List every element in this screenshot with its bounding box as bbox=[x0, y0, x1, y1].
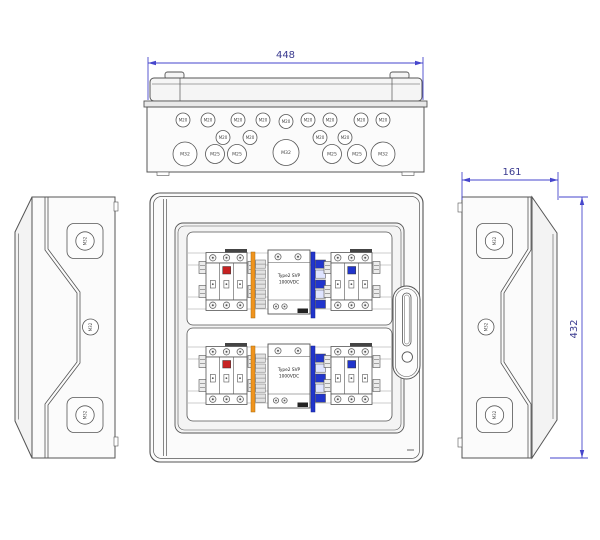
front-view: Type2 SVP 1000VDC Type2 SVP 1000VDC bbox=[150, 193, 423, 462]
cable-gland: M20 bbox=[301, 113, 315, 127]
cable-gland: M25 bbox=[206, 145, 225, 164]
side-knockout: M32 bbox=[83, 319, 99, 335]
right-side-view: M32 M32 M32 161 432 bbox=[458, 167, 588, 458]
svg-text:M32: M32 bbox=[83, 236, 88, 245]
svg-text:M32: M32 bbox=[378, 152, 388, 158]
drawing-canvas: 448 M20 M20 M20 M20 M20 M20 M20 M20 M2 bbox=[0, 0, 600, 540]
svg-text:M32: M32 bbox=[281, 150, 291, 156]
svg-text:M20: M20 bbox=[219, 135, 228, 140]
svg-text:M20: M20 bbox=[204, 118, 213, 123]
svg-text:M32: M32 bbox=[492, 236, 497, 245]
cable-gland: M20 bbox=[323, 113, 337, 127]
technical-drawing: 448 M20 M20 M20 M20 M20 M20 M20 M20 M2 bbox=[0, 0, 600, 540]
top-view: 448 M20 M20 M20 M20 M20 M20 M20 M20 M2 bbox=[144, 50, 427, 176]
door-handle bbox=[393, 286, 420, 379]
hinge-tab bbox=[458, 438, 462, 447]
top-view-rim bbox=[144, 101, 427, 107]
cable-gland: M20 bbox=[176, 113, 190, 127]
side-knockout: M32 bbox=[67, 224, 103, 259]
svg-text:M20: M20 bbox=[246, 135, 255, 140]
spd-label-line1: Type2 SVP bbox=[277, 367, 301, 373]
side-knockout: M32 bbox=[67, 398, 103, 433]
side-knockout: M32 bbox=[478, 319, 494, 335]
cable-gland: M20 bbox=[338, 131, 352, 145]
cable-gland: M20 bbox=[216, 131, 230, 145]
lock-circle bbox=[402, 352, 412, 362]
left-lid-profile bbox=[15, 197, 32, 458]
hinge-tab bbox=[114, 437, 118, 446]
side-knockout: M32 bbox=[477, 398, 513, 433]
svg-text:M32: M32 bbox=[484, 322, 489, 331]
svg-text:M20: M20 bbox=[234, 118, 243, 123]
terminal-strip-orange bbox=[251, 346, 266, 412]
cable-gland: M20 bbox=[256, 113, 270, 127]
cable-gland-row1: M20 M20 M20 M20 M20 M20 M20 M20 M20 bbox=[176, 113, 390, 129]
hinge-tab bbox=[114, 202, 118, 211]
cable-gland: M32 bbox=[173, 142, 197, 166]
svg-text:M20: M20 bbox=[379, 118, 388, 123]
terminal-strip-blue bbox=[311, 252, 326, 318]
svg-text:M20: M20 bbox=[304, 118, 313, 123]
dimension-depth-label: 161 bbox=[502, 167, 521, 178]
svg-text:M20: M20 bbox=[341, 135, 350, 140]
hinge-tab bbox=[458, 203, 462, 212]
svg-text:M25: M25 bbox=[352, 152, 362, 158]
svg-text:M25: M25 bbox=[210, 152, 220, 158]
fuse-group-right bbox=[324, 343, 380, 405]
cable-gland: M20 bbox=[376, 113, 390, 127]
spd-label-line1: Type2 SVP bbox=[277, 273, 301, 279]
svg-text:M20: M20 bbox=[259, 118, 268, 123]
left-side-view: M32 M32 M32 bbox=[15, 197, 118, 458]
fuse-group-right bbox=[324, 249, 380, 311]
component-row-2: Type2 SVP 1000VDC bbox=[199, 343, 380, 412]
svg-text:M20: M20 bbox=[316, 135, 325, 140]
fuse-group-left bbox=[199, 343, 255, 405]
svg-text:M25: M25 bbox=[327, 152, 337, 158]
svg-text:M32: M32 bbox=[492, 410, 497, 419]
dimension-height-label: 432 bbox=[569, 319, 580, 338]
cable-gland: M20 bbox=[201, 113, 215, 127]
cable-gland: M20 bbox=[231, 113, 245, 127]
dimension-depth: 161 bbox=[462, 167, 558, 200]
cable-gland: M20 bbox=[354, 113, 368, 127]
svg-text:M32: M32 bbox=[180, 152, 190, 158]
component-row-1: Type2 SVP 1000VDC bbox=[199, 249, 380, 318]
cable-gland: M25 bbox=[228, 145, 247, 164]
svg-text:M32: M32 bbox=[88, 322, 93, 331]
svg-text:M32: M32 bbox=[83, 410, 88, 419]
cable-gland: M25 bbox=[323, 145, 342, 164]
fuse-group-left bbox=[199, 249, 255, 311]
dimension-width-label: 448 bbox=[276, 50, 295, 61]
spd-label-line2: 1000VDC bbox=[279, 280, 299, 286]
cable-gland: M20 bbox=[313, 131, 327, 145]
terminal-strip-blue bbox=[311, 346, 326, 412]
foot-right bbox=[402, 172, 414, 176]
handle-slot bbox=[403, 293, 412, 346]
terminal-strip-orange bbox=[251, 252, 266, 318]
side-knockout: M32 bbox=[477, 224, 513, 259]
svg-text:M20: M20 bbox=[179, 118, 188, 123]
cable-gland: M20 bbox=[279, 115, 293, 129]
cable-gland: M25 bbox=[348, 145, 367, 164]
cable-gland: M32 bbox=[273, 140, 299, 166]
svg-text:M20: M20 bbox=[326, 118, 335, 123]
spd-label-line2: 1000VDC bbox=[279, 374, 299, 380]
top-view-lid bbox=[144, 72, 427, 107]
cable-gland: M32 bbox=[371, 142, 395, 166]
svg-text:M20: M20 bbox=[282, 119, 291, 124]
svg-text:M25: M25 bbox=[232, 152, 242, 158]
foot-left bbox=[157, 172, 169, 176]
svg-text:M20: M20 bbox=[357, 118, 366, 123]
cable-gland: M20 bbox=[243, 131, 257, 145]
